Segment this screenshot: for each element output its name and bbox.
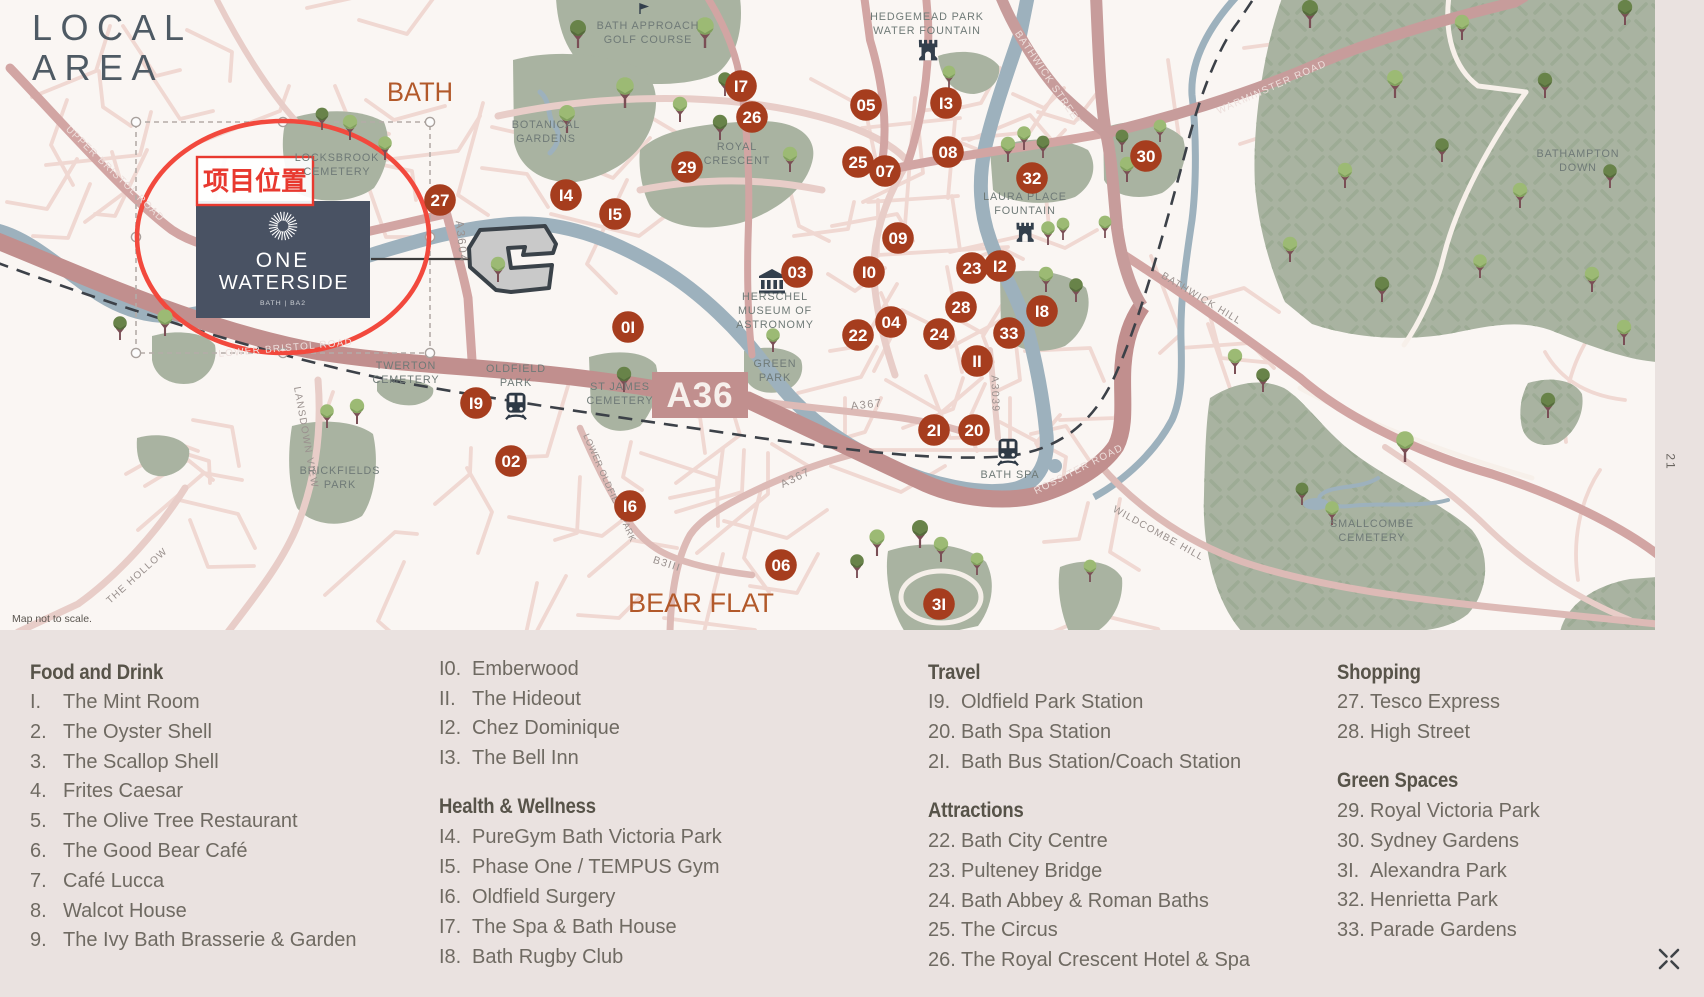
- svg-text:BEAR FLAT: BEAR FLAT: [628, 588, 774, 618]
- svg-text:II: II: [972, 352, 981, 371]
- svg-text:LOCKSBROOK: LOCKSBROOK: [295, 152, 380, 164]
- svg-text:I9: I9: [469, 394, 483, 413]
- svg-text:I4: I4: [559, 186, 574, 205]
- svg-text:GOLF COURSE: GOLF COURSE: [604, 34, 693, 46]
- svg-text:09: 09: [889, 229, 908, 248]
- svg-text:BOTANICAL: BOTANICAL: [512, 119, 581, 131]
- svg-text:FOUNTAIN: FOUNTAIN: [994, 205, 1056, 217]
- svg-text:HEDGEMEAD PARK: HEDGEMEAD PARK: [870, 11, 984, 23]
- svg-text:MUSEUM OF: MUSEUM OF: [738, 305, 812, 317]
- svg-text:I7: I7: [734, 77, 748, 96]
- svg-text:2I: 2I: [927, 421, 941, 440]
- svg-text:25: 25: [849, 153, 868, 172]
- svg-text:0I: 0I: [621, 318, 635, 337]
- svg-text:OLDFIELD: OLDFIELD: [486, 363, 546, 375]
- svg-text:05: 05: [857, 96, 876, 115]
- svg-text:CEMETERY: CEMETERY: [304, 166, 371, 178]
- svg-text:22: 22: [849, 326, 868, 345]
- svg-text:I2: I2: [993, 257, 1007, 276]
- svg-text:23: 23: [963, 259, 982, 278]
- svg-text:08: 08: [939, 143, 958, 162]
- svg-text:WATERSIDE: WATERSIDE: [219, 272, 349, 294]
- svg-text:ST JAMES: ST JAMES: [590, 381, 650, 393]
- svg-text:WATER FOUNTAIN: WATER FOUNTAIN: [873, 25, 981, 37]
- svg-text:HERSCHEL: HERSCHEL: [742, 291, 808, 303]
- svg-text:30: 30: [1137, 147, 1156, 166]
- svg-text:I6: I6: [623, 497, 637, 516]
- svg-text:Map not to scale.: Map not to scale.: [12, 613, 92, 625]
- svg-text:A3039: A3039: [988, 375, 1001, 413]
- svg-text:DOWN: DOWN: [1559, 162, 1597, 174]
- svg-text:GARDENS: GARDENS: [516, 133, 576, 145]
- svg-text:LOCAL: LOCAL: [32, 7, 193, 48]
- svg-text:BATH: BATH: [387, 77, 453, 107]
- svg-text:BATH SPA: BATH SPA: [981, 469, 1040, 481]
- svg-text:3I: 3I: [932, 595, 946, 614]
- svg-text:PARK: PARK: [759, 372, 791, 384]
- svg-text:33: 33: [1000, 324, 1019, 343]
- svg-text:I0: I0: [862, 263, 876, 282]
- svg-text:AREA: AREA: [32, 47, 164, 88]
- svg-text:29: 29: [678, 158, 697, 177]
- svg-text:27: 27: [431, 191, 450, 210]
- svg-text:BATH | BA2: BATH | BA2: [260, 300, 306, 307]
- svg-text:项目位置: 项目位置: [203, 166, 307, 196]
- svg-text:07: 07: [876, 162, 895, 181]
- svg-text:04: 04: [882, 313, 901, 332]
- svg-text:24: 24: [930, 325, 949, 344]
- svg-text:28: 28: [952, 298, 971, 317]
- svg-text:CEMETERY: CEMETERY: [373, 374, 440, 386]
- svg-text:06: 06: [772, 556, 791, 575]
- svg-text:02: 02: [502, 452, 521, 471]
- svg-text:GREEN: GREEN: [754, 358, 797, 370]
- svg-text:BATH APPROACH: BATH APPROACH: [597, 20, 700, 32]
- svg-text:I8: I8: [1035, 302, 1049, 321]
- svg-text:ONE: ONE: [256, 249, 311, 272]
- svg-text:26: 26: [743, 108, 762, 127]
- svg-text:03: 03: [788, 263, 807, 282]
- svg-text:20: 20: [965, 421, 984, 440]
- svg-text:ASTRONOMY: ASTRONOMY: [736, 319, 814, 331]
- svg-text:PARK: PARK: [324, 479, 356, 491]
- svg-text:I5: I5: [608, 205, 622, 224]
- svg-text:CEMETERY: CEMETERY: [587, 395, 654, 407]
- svg-text:BATHAMPTON: BATHAMPTON: [1537, 148, 1620, 160]
- svg-text:I3: I3: [939, 94, 953, 113]
- svg-text:A36: A36: [666, 376, 733, 415]
- svg-text:LAURA PLACE: LAURA PLACE: [983, 191, 1067, 203]
- svg-text:SMALLCOMBE: SMALLCOMBE: [1330, 518, 1414, 530]
- svg-text:TWERTON: TWERTON: [376, 360, 437, 372]
- svg-text:32: 32: [1023, 169, 1042, 188]
- svg-text:CEMETERY: CEMETERY: [1339, 532, 1406, 544]
- svg-text:ROYAL: ROYAL: [717, 141, 757, 153]
- svg-text:PARK: PARK: [500, 377, 532, 389]
- svg-text:CRESCENT: CRESCENT: [704, 155, 771, 167]
